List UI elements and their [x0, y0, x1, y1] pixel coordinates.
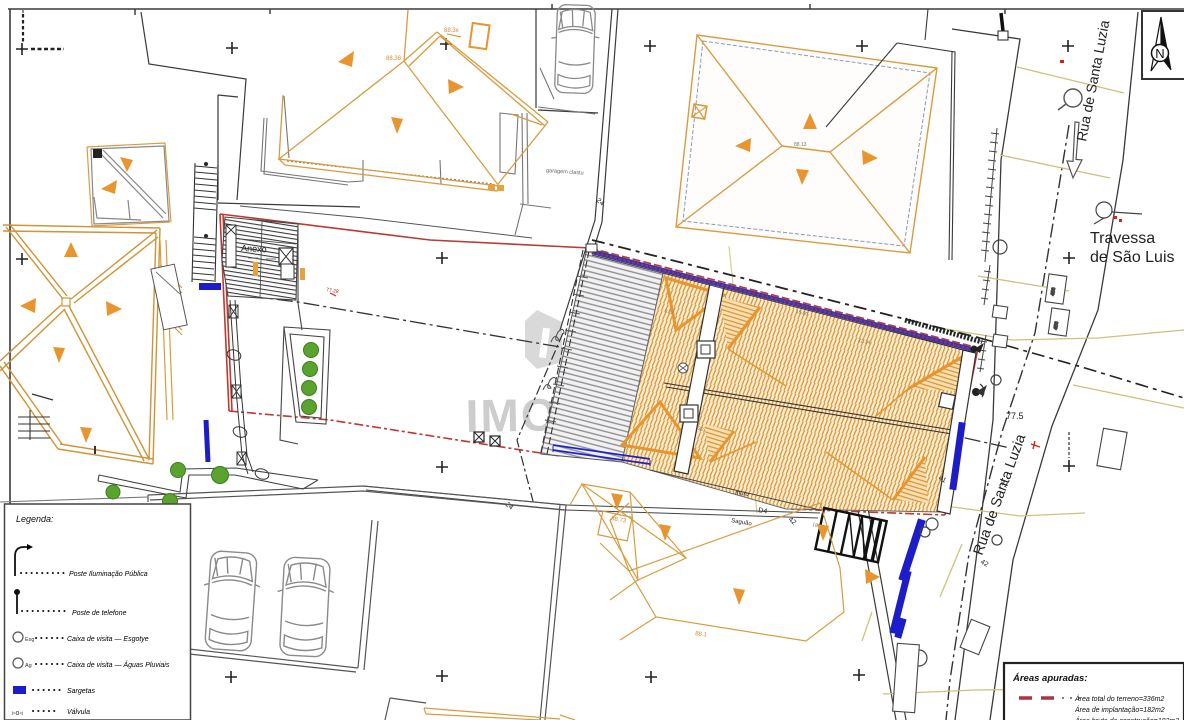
svg-text:Caixa de visita — Esgotye: Caixa de visita — Esgotye: [67, 636, 149, 643]
svg-text:88.13: 88.13: [794, 142, 807, 148]
svg-text:456: 456: [1050, 287, 1057, 296]
svg-text:77.5: 77.5: [1006, 411, 1024, 421]
svg-text:Sargetas: Sargetas: [67, 688, 96, 695]
svg-text:Anexo: Anexo: [241, 243, 267, 254]
svg-text:▹o◃: ▹o◃: [12, 710, 23, 717]
svg-text:Esg: Esg: [25, 637, 34, 643]
svg-text:Área total do terreno=336m2: Área total do terreno=336m2: [1074, 694, 1164, 703]
svg-text:Área de implantação=182m2: Área de implantação=182m2: [1074, 705, 1165, 714]
svg-text:88.38: 88.38: [386, 56, 402, 62]
svg-text:N: N: [1155, 46, 1164, 61]
svg-text:88.3x: 88.3x: [444, 28, 459, 34]
svg-text:Ag: Ag: [25, 663, 32, 669]
svg-text:456: 456: [1053, 321, 1060, 330]
svg-text:de São Luis: de São Luis: [1090, 249, 1175, 266]
svg-text:Legenda:: Legenda:: [16, 514, 54, 524]
svg-text:Travessa: Travessa: [1090, 230, 1155, 247]
svg-text:Poste de telefone: Poste de telefone: [72, 610, 127, 617]
svg-text:Áreas apuradas:: Áreas apuradas:: [1012, 673, 1087, 684]
svg-text:Caixa de visita — Águas Pluvia: Caixa de visita — Águas Pluviais: [67, 660, 170, 669]
svg-text:Poste Iluminação Pública: Poste Iluminação Pública: [69, 571, 148, 578]
svg-text:Válvula: Válvula: [67, 709, 90, 716]
